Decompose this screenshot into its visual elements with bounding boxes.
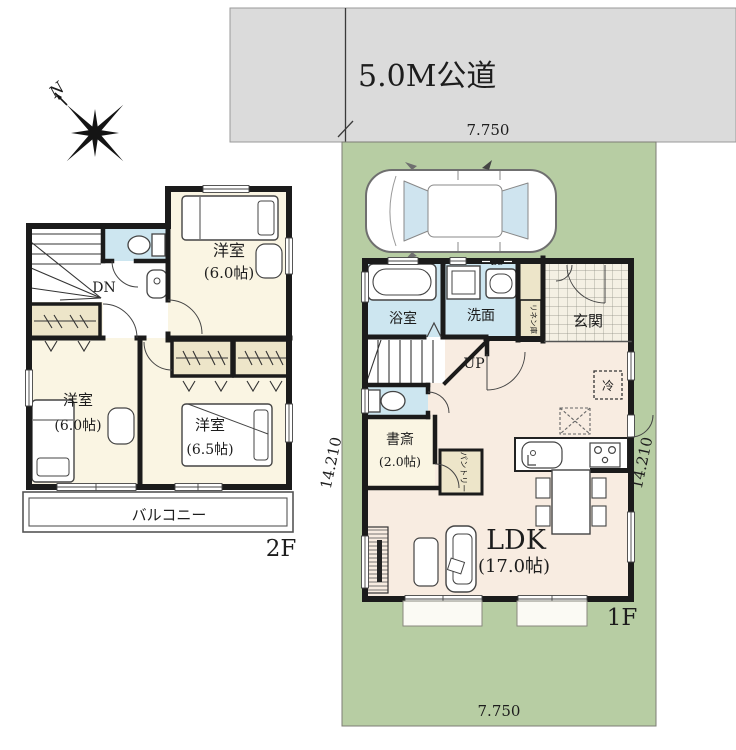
road: 5.0M公道 7.750 xyxy=(230,8,736,142)
compass-star-icon xyxy=(67,105,124,162)
fridge-label: 冷 xyxy=(602,379,614,393)
balcony-label: バルコニー xyxy=(132,506,207,524)
bed-bedroom-a xyxy=(182,196,278,240)
bedroom-a-area-label: (6.0帖) xyxy=(204,264,255,282)
washbasin-1f xyxy=(486,269,516,298)
bedroom-b-label: 洋室 xyxy=(63,391,93,409)
ldk-area-label: (17.0帖) xyxy=(478,556,550,577)
floor-plan-page: 5.0M公道 7.750 N 7.750 14.210 14.210 xyxy=(0,0,736,750)
stair-up-label: UP xyxy=(463,356,484,372)
terrace-step xyxy=(403,601,482,626)
pillow xyxy=(254,410,268,460)
car-roof xyxy=(428,185,502,237)
kitchen-counter xyxy=(515,438,630,473)
bedroom-c-label: 洋室 xyxy=(195,416,225,434)
washroom-label: 洗面 xyxy=(467,308,495,324)
dining-chair xyxy=(592,478,606,498)
terrace-step xyxy=(517,601,587,626)
stair-dn-label: DN xyxy=(92,280,115,296)
washbasin-2f xyxy=(147,270,167,298)
bath-label: 浴室 xyxy=(389,310,417,327)
road-label: 5.0M公道 xyxy=(358,59,496,94)
study-area-label: (2.0帖) xyxy=(379,454,421,469)
car-windshield xyxy=(404,181,428,241)
linen-label: リネン庫 xyxy=(529,304,539,334)
dimension-left: 14.210 xyxy=(317,435,346,490)
pillow xyxy=(258,201,274,235)
dining-chair xyxy=(592,506,606,526)
bedroom-a-label: 洋室 xyxy=(213,241,245,260)
floor-plan-2f: バルコニー 洋室 (6.0帖) DN 洋室 (6.0帖) 洋室 (6.5帖) 2… xyxy=(23,186,296,563)
side-table-bedroom-b xyxy=(108,408,134,444)
rear-door-gap xyxy=(628,415,635,437)
sofa xyxy=(446,526,476,592)
bedroom-c-area-label: (6.5帖) xyxy=(186,442,233,458)
toilet-1f-fixture xyxy=(368,390,405,412)
dimension-bottom: 7.750 xyxy=(478,702,521,720)
floor-plan-drawing: 5.0M公道 7.750 N 7.750 14.210 14.210 xyxy=(0,0,736,750)
bathtub xyxy=(368,264,436,300)
ldk-label: LDK xyxy=(486,525,547,556)
balcony: バルコニー xyxy=(23,492,293,532)
dining-chair xyxy=(536,506,550,526)
car-rear-window xyxy=(502,183,528,239)
floor2-label: 2F xyxy=(266,536,297,562)
study-label: 書斎 xyxy=(386,431,414,448)
entrance-label: 玄関 xyxy=(573,312,603,330)
compass-north-label: N xyxy=(44,77,68,102)
meter-label: BS xyxy=(491,258,504,268)
bedroom-b-area-label: (6.0帖) xyxy=(54,418,101,434)
tv-board xyxy=(366,527,388,593)
pantry-label: パントリー xyxy=(459,452,468,492)
tv xyxy=(377,540,382,582)
dimension-top: 7.750 xyxy=(467,121,510,139)
dining-chair xyxy=(536,478,550,498)
floor-plan-1f: BS 浴室 洗面 玄関 リネン庫 UP 書斎 (2.0帖) パントリー 冷 LD… xyxy=(362,258,654,632)
floor1-label: 1F xyxy=(607,605,638,631)
pillow xyxy=(37,458,69,476)
car xyxy=(366,160,556,260)
washing-machine xyxy=(447,266,480,299)
side-table-bedroom-a xyxy=(256,244,282,278)
compass: N xyxy=(44,77,123,161)
coffee-table xyxy=(414,538,438,586)
study-floor xyxy=(365,417,435,488)
counter-end-wall xyxy=(590,468,630,473)
bed-bedroom-b xyxy=(32,400,74,482)
